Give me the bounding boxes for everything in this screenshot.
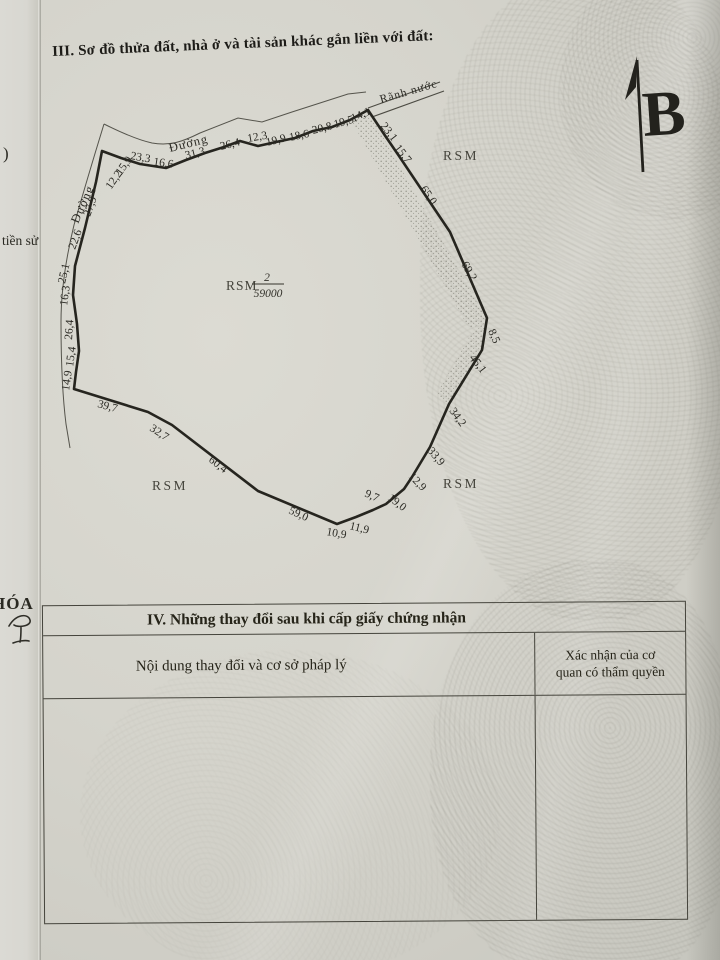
parcel-label-group: RSM 2 59000 bbox=[226, 272, 284, 300]
edge-measurement: 16,6 bbox=[153, 156, 175, 171]
table-body-left-cell bbox=[44, 696, 538, 923]
road-outline-top bbox=[104, 92, 366, 144]
edge-measurement: 34,2 bbox=[447, 406, 469, 430]
region-label-rsm: RSM bbox=[443, 476, 479, 491]
table-title: IV. Những thay đổi sau khi cấp giấy chứn… bbox=[43, 602, 685, 636]
certificate-page: III. Sơ đồ thửa đất, nhà ở và tài sản kh… bbox=[0, 0, 720, 960]
edge-measurement: 9,7 bbox=[363, 488, 381, 505]
ditch-label: Rãnh nước bbox=[379, 78, 439, 106]
edge-measurement: 26,4 bbox=[63, 319, 76, 340]
edge-measurement: 19,0 bbox=[385, 492, 408, 514]
edge-measurement: 59,0 bbox=[287, 505, 310, 524]
edge-measurement: 25,1 bbox=[56, 262, 72, 285]
edge-measurement: 10,9 bbox=[325, 526, 347, 541]
edge-measurement: 19,9 bbox=[265, 132, 288, 149]
edge-measurement: 16,3 bbox=[58, 285, 73, 307]
table-body-right-cell bbox=[536, 695, 688, 920]
north-arrowhead bbox=[625, 56, 637, 100]
north-letter: B bbox=[640, 76, 688, 150]
edge-measurement: 60,4 bbox=[206, 454, 229, 476]
table-body-row bbox=[44, 695, 688, 923]
edge-measurement: 14,9 bbox=[60, 370, 75, 392]
slope-stipple-band bbox=[352, 110, 487, 330]
edge-measurement: 32,7 bbox=[147, 422, 171, 443]
edge-measurement: 20,8 bbox=[311, 120, 334, 137]
column-header-confirmation-line1: Xác nhận của cơ bbox=[565, 645, 655, 663]
north-arrow: B bbox=[625, 56, 688, 172]
edge-measurement: 11,9 bbox=[348, 520, 370, 536]
parcel-area: 59000 bbox=[254, 288, 283, 300]
table-header-row: Nội dung thay đổi và cơ sở pháp lý Xác n… bbox=[43, 632, 685, 699]
region-label-rsm: RSM bbox=[152, 478, 188, 493]
column-header-content: Nội dung thay đổi và cơ sở pháp lý bbox=[43, 633, 535, 698]
column-header-confirmation-line2: quan có thẩm quyền bbox=[556, 663, 665, 681]
region-label-rsm: RSM bbox=[443, 148, 479, 163]
parcel-boundary bbox=[73, 110, 487, 524]
parcel-number: 2 bbox=[264, 272, 270, 284]
edge-measurement: 8,5 bbox=[485, 327, 502, 345]
changes-table: IV. Những thay đổi sau khi cấp giấy chứn… bbox=[42, 601, 688, 924]
edge-measurement: 12,9 bbox=[406, 471, 429, 494]
column-header-confirmation: Xác nhận của cơ quan có thẩm quyền bbox=[535, 632, 685, 695]
edge-measurement: 18,6 bbox=[288, 128, 310, 144]
edge-measurement: 26,4 bbox=[219, 136, 242, 153]
